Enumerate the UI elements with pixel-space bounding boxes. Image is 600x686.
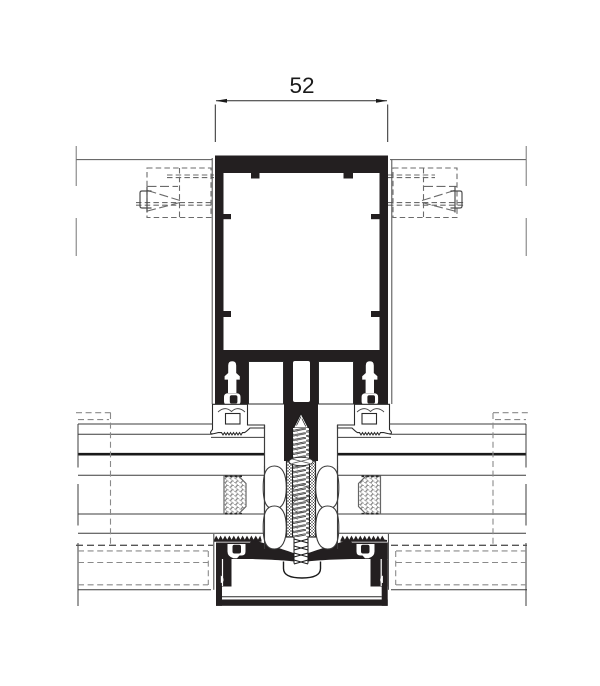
svg-text:52: 52 (289, 73, 314, 98)
